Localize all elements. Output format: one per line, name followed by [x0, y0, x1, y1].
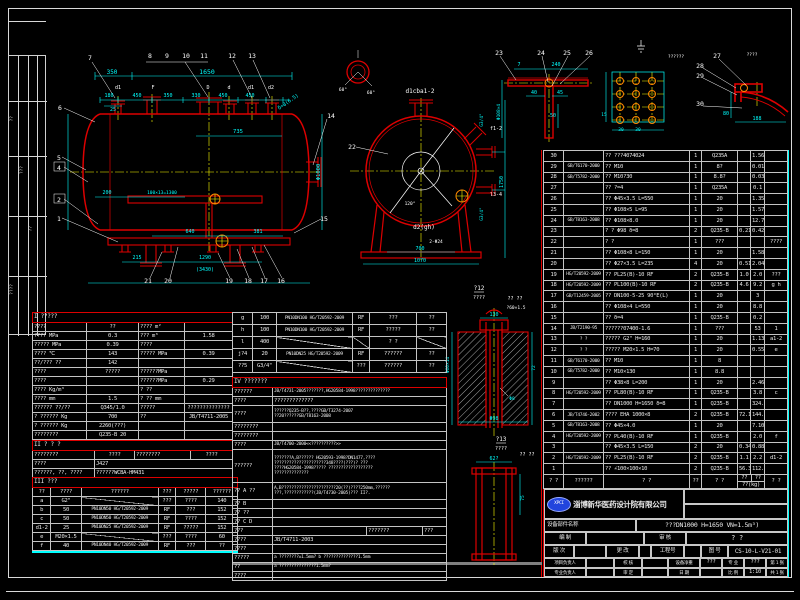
- svg-text:100×13=1300: 100×13=1300: [147, 190, 177, 196]
- tb-value: [639, 545, 651, 558]
- noz-accent: [32, 551, 238, 553]
- req-row: ?? ??: [233, 509, 447, 518]
- company-logo: XPCI: [547, 497, 571, 512]
- nozzle-row: l400 ? ?: [233, 337, 447, 349]
- svg-text:215: 215: [132, 255, 141, 261]
- end-view-internals: [390, 128, 454, 213]
- tb-value: ???: [700, 558, 722, 568]
- req-row: ?????a ????????±1.5mm? b ??????????????1…: [233, 554, 447, 563]
- bom-row: 12 ? ? ????? M20×1.5 H=70 1 20 0.55 e: [544, 345, 788, 356]
- tb-value: [684, 545, 701, 558]
- svg-text:15: 15: [320, 215, 328, 223]
- svg-text:350: 350: [163, 93, 172, 99]
- noz-header: ???????????? ??????????????: [33, 488, 238, 497]
- svg-text:7: 7: [88, 54, 92, 62]
- nozzle-table: III ??? ???????????? ?????????????? aG2"…: [32, 477, 238, 551]
- bom-row: 22 ? ? 1 ??? ????: [544, 237, 788, 248]
- req-row: ???? ??????Q235-B??,????GB/T3274-2007??2…: [233, 406, 447, 423]
- bom-row: 18 HG/T20592-2009 ?? PL100(B)-10 RF 2 Q2…: [544, 280, 788, 291]
- spec-row: ? ?????? Kg2260(???): [33, 422, 233, 431]
- svg-text:640: 640: [185, 229, 194, 235]
- end-view-labels: d1cba1-2 22 d2(gh) 60° 60° 120° 700 2-Φ2…: [339, 87, 505, 264]
- nozzle-row: ??5G3/4" ??? ????????: [233, 361, 447, 373]
- bom: 30 ?? ???4074024 1 Q235A 1.56 29 GB/T617…: [543, 150, 788, 489]
- svg-text:?13: ?13: [496, 436, 507, 443]
- nozzle-row: d1-225PN10DN25 HG/T20592-2009 RF?????152: [33, 524, 238, 533]
- end-flange-bolt: [456, 190, 468, 202]
- tb-label: 项目负责人: [544, 558, 586, 568]
- spec-row: ????????Q235-B 20: [33, 431, 233, 440]
- angle-detail[interactable]: [345, 50, 372, 86]
- tb-value: [586, 558, 614, 568]
- bom-row: 6 JB/T4746-2002 ???? EHA 1000×8 2 Q235-B…: [544, 410, 788, 421]
- svg-text:15: 15: [601, 112, 607, 118]
- svg-text:62?: 62?: [489, 456, 498, 462]
- tb-label: 日 期: [668, 568, 700, 577]
- svg-text:l3-4: l3-4: [490, 192, 502, 198]
- tb-value: [586, 532, 644, 545]
- bom-row: 24 GB/T8163-2008 ?? Φ108×8.0 1 20 12.7: [544, 215, 788, 226]
- svg-text:1750: 1750: [499, 176, 505, 188]
- nozzle-row: c50PN10DN50 HG/T20592-2009 RF????152: [33, 515, 238, 524]
- svg-text:240: 240: [551, 62, 560, 68]
- svg-text:G3/4": G3/4": [479, 207, 485, 221]
- company-cell: XPCI 淄博新华医药设计院有限公司: [544, 489, 684, 519]
- tb-label: 设备净重: [668, 558, 700, 568]
- bom-row: 20 ?? Φ27×3.5 L=235 4 20 0.51 2.04: [544, 258, 788, 269]
- bom-row: 2 HG/T20592-2009 ?? PL25(B)-10 RF 2 Q235…: [544, 453, 788, 464]
- tb-label: 校 核: [614, 558, 642, 568]
- svg-text:22: 22: [348, 143, 356, 151]
- bom-row: 17 GB/T12459-2005 ?? DN100-5-25 90°E(L) …: [544, 291, 788, 302]
- sec2-row: ????J427: [33, 460, 233, 469]
- svg-text:450: 450: [132, 93, 141, 99]
- bom-row: 10 GB/T5782-2000 ?? M10×130 1 8.8: [544, 366, 788, 377]
- svg-text:4: 4: [57, 164, 61, 172]
- svg-text:f1-2: f1-2: [490, 126, 502, 132]
- nozzle-row: f40PN10DN40 HG/T20592-2009 RF?????: [33, 542, 238, 551]
- front-flange-bolts: [210, 194, 228, 247]
- nozzle-row: eM20×1.5 ???????60: [33, 533, 238, 542]
- bom-row: 13 ? ? ????? G2" H=160 1 20 1.13 a1-2: [544, 334, 788, 345]
- tb-label: 比 例: [722, 568, 744, 577]
- svg-text:Φ8: Φ8: [509, 396, 515, 402]
- req-row: ?? C D: [233, 518, 447, 527]
- bom-row: 29 GB/T6170-2000 ?? M10 1 8? 0.01: [544, 161, 788, 172]
- req-row: ??a ???????????????1.5mm?: [233, 563, 447, 572]
- svg-text:45: 45: [557, 90, 563, 96]
- bom-row: 3 ?? Φ45×3.5 L=150 2 20 0.34 0.88: [544, 442, 788, 453]
- svg-text:16: 16: [277, 277, 285, 285]
- tb-label: 图 号: [701, 545, 728, 558]
- svg-text:60°: 60°: [367, 90, 375, 96]
- bom-row: 7 ?? DN1000 H=1650 δ=8 1 Q235-B 324.3: [544, 399, 788, 410]
- spec-row: ????????? ??????MPa: [33, 368, 233, 377]
- svg-text:(3430): (3430): [196, 267, 214, 273]
- tb-value: [700, 568, 722, 577]
- svg-text:30: 30: [635, 127, 641, 133]
- svg-text:7: 7: [517, 62, 520, 68]
- svg-text:50: 50: [550, 113, 556, 119]
- svg-text:d1: d1: [248, 85, 254, 91]
- spec-row: ??/??? ??142: [33, 359, 233, 368]
- front-view[interactable]: [83, 97, 321, 266]
- svg-text:20: 20: [164, 277, 172, 285]
- svg-text:d1cba1-2: d1cba1-2: [406, 88, 435, 95]
- bom-row: 26 ?? Φ45×3.5 L=550 1 20 1.35: [544, 194, 788, 205]
- svg-text:????: ????: [473, 295, 485, 301]
- svg-text:24: 24: [537, 49, 545, 57]
- svg-text:2-Φ24: 2-Φ24: [429, 239, 443, 245]
- spec-row: ???? mm1.5 ? ?? mm: [33, 395, 233, 404]
- svg-text:180: 180: [104, 93, 113, 99]
- svg-text:23: 23: [495, 49, 503, 57]
- svg-text:450: 450: [245, 93, 254, 99]
- svg-text:9: 9: [165, 52, 169, 60]
- bom-row: 23 ? ? Φ98 δ=8 2 Q235-B 0.21 0.42: [544, 226, 788, 237]
- sheet-number: 第 1 张: [766, 558, 788, 568]
- spec-row: ???? Kg/m³ ? ??: [33, 386, 233, 395]
- lug-bolt: [741, 85, 748, 92]
- sheet-total: 共 1 张: [766, 568, 788, 577]
- svg-text:12: 12: [228, 52, 236, 60]
- bom-row: 30 ?? ???4074024 1 Q235A 1.56: [544, 151, 788, 162]
- svg-text:11: 11: [200, 52, 208, 60]
- spec-row: ? ?????? Kg700 ??JB/T4711-2005: [33, 413, 233, 422]
- svg-text:28: 28: [696, 62, 704, 70]
- spec-table-wrap: I ????? ?????? ???? m² ???? MPa0.3 ??? m…: [32, 312, 233, 440]
- bom-row: 8 HG/T20592-2009 ?? PL80(B)-10 RF 1 Q235…: [544, 388, 788, 399]
- tb-value: ???: [744, 558, 766, 568]
- nozzle2-wrap: g100 PN10DN100 HG/T20592-2009RF ????? h1…: [232, 312, 447, 373]
- req-row: ????: [233, 545, 447, 554]
- title-block: XPCI 淄博新华医药设计院有限公司 设备部件名称 ???DN1000 H=16…: [543, 489, 788, 577]
- tb-label: 版 次: [544, 545, 574, 558]
- svg-text:8: 8: [148, 52, 152, 60]
- tb-stage: ? ?: [686, 532, 788, 545]
- tb-blank-1: [684, 489, 788, 504]
- svg-text:????: ????: [495, 446, 507, 452]
- svg-text:d2: d2: [268, 85, 274, 91]
- tb-value: [586, 568, 614, 577]
- company-name: 淄博新华医药设计院有限公司: [573, 499, 667, 510]
- sec2-row: ???????????? ????????????: [33, 451, 233, 460]
- bom-row: 14 JB/T2190-95 ??????07400-1.6 1 ??? 53 …: [544, 323, 788, 334]
- svg-text:F: F: [151, 85, 154, 91]
- spec-row: ????? MPa0.39 ????: [33, 341, 233, 350]
- nozzle-row: h100 PN10DN100 HG/T20592-2009RF ???????: [233, 325, 447, 337]
- svg-text:10: 10: [182, 52, 190, 60]
- req-row: ?????????????: [233, 527, 447, 536]
- req-table: IV ??????? ??????JB/T4731-2005???????,HG…: [232, 377, 447, 581]
- svg-text:450: 450: [218, 93, 227, 99]
- drawing-number: CS-10-L-V21-01: [728, 545, 788, 558]
- svg-text:381: 381: [253, 229, 262, 235]
- svg-text:5: 5: [57, 154, 61, 162]
- svg-text:30: 30: [618, 127, 624, 133]
- bom-row: 27 ?? ?=4 1 Q235A 0.1: [544, 183, 788, 194]
- svg-text:1650: 1650: [199, 68, 215, 76]
- tb-label: 审 核: [644, 532, 686, 545]
- tb-label: 专业负责人: [544, 568, 586, 577]
- tb-value: [642, 558, 668, 568]
- req-row: ????: [233, 572, 447, 581]
- noz-title: III ???: [33, 478, 238, 488]
- cad-viewport[interactable]: ?? ??? ?? ????: [0, 0, 800, 600]
- name-label: 设备部件名称: [544, 519, 636, 532]
- req-row: ?????????????????: [233, 397, 447, 406]
- svg-text:?12: ?12: [474, 285, 485, 292]
- nozzle-table-2: g100 PN10DN100 HG/T20592-2009RF ????? h1…: [232, 312, 447, 373]
- req-row: ????JB/T4711-2003: [233, 536, 447, 545]
- svg-text:13: 13: [248, 52, 256, 60]
- bom-row: 15 ?? δ=4 1 Q235-B 0.2: [544, 312, 788, 323]
- svg-text:29: 29: [696, 72, 704, 80]
- svg-text:21: 21: [144, 277, 152, 285]
- req-title: IV ???????: [233, 378, 447, 388]
- svg-text:Φ98: Φ98: [489, 416, 498, 422]
- svg-text:30: 30: [696, 100, 704, 108]
- bom-row: 4 HG/T20592-2009 ?? PL40(B)-10 RF 1 Q235…: [544, 431, 788, 442]
- nozzle-row: b50PN10DN50 HG/T20592-2009 RF???152: [33, 506, 238, 515]
- svg-text:350: 350: [107, 69, 118, 76]
- req-row: ?? A ?? A,B??????????????????????20(??)?…: [233, 483, 447, 500]
- svg-text:1: 1: [57, 215, 61, 223]
- svg-text:75: 75: [520, 495, 526, 501]
- req-row: ????????: [233, 423, 447, 432]
- bom-row: 28 GB/T5782-2000 ?? M10?30 1 8.8? 0.03: [544, 172, 788, 183]
- req-row: ?? B: [233, 500, 447, 509]
- svg-text:130: 130: [489, 312, 498, 318]
- tb-label: 更 改: [606, 545, 639, 558]
- svg-text:δ=8(6.5): δ=8(6.5): [277, 93, 300, 112]
- svg-text:?60×1.5: ?60×1.5: [507, 305, 526, 311]
- svg-text:120°: 120°: [405, 201, 416, 207]
- svg-text:25: 25: [110, 107, 116, 113]
- perforated-plate[interactable]: [612, 40, 664, 124]
- svg-text:?? ??: ?? ??: [519, 452, 534, 458]
- bom-row: 11 GB/T6170-2000 ?? M10 1 8: [544, 356, 788, 367]
- svg-text:26: 26: [585, 49, 593, 57]
- nozzle-row: j?420 PN10DN25 HG/T20592-2009RF ????????: [233, 349, 447, 361]
- sec2-title: II ? ? ?: [33, 441, 233, 451]
- svg-text:1290: 1290: [199, 255, 211, 261]
- svg-text:330: 330: [191, 93, 200, 99]
- svg-text:700: 700: [415, 246, 424, 252]
- tb-label: 专 业: [722, 558, 744, 568]
- svg-text:d2(gh): d2(gh): [413, 224, 435, 231]
- req-wrap: IV ??????? ??????JB/T4731-2005???????,HG…: [232, 377, 447, 581]
- bom-row: 9 ?? Φ38×8 L=200 1 20 2.46: [544, 377, 788, 388]
- req-row: ????JB/T4700-2000<<??????????>>: [233, 441, 447, 450]
- spec-row: ???? MPa0.3 ??? m³1.58: [33, 332, 233, 341]
- bom-row: 16 ?? Φ108×4 L=550 1 20 8.8: [544, 302, 788, 313]
- svg-text:60°: 60°: [339, 87, 347, 93]
- svg-text:80: 80: [723, 111, 729, 117]
- svg-text:72: 72: [531, 365, 537, 371]
- scale-value: 1:10: [744, 568, 766, 577]
- svg-text:1070: 1070: [414, 258, 426, 264]
- svg-text:14: 14: [327, 112, 335, 120]
- svg-text:d: d: [227, 85, 230, 91]
- svg-text:D: D: [206, 85, 209, 91]
- svg-text:??????: ??????: [668, 54, 685, 60]
- tb-value: [642, 568, 668, 577]
- svg-text:????: ????: [747, 52, 758, 58]
- svg-text:6: 6: [58, 104, 62, 112]
- svg-text:40: 40: [531, 90, 537, 96]
- ground-symbol: [637, 40, 645, 52]
- spec-row: ?????? ??/??Q345/1.0 ???????????????????: [33, 404, 233, 413]
- svg-text:27: 27: [713, 52, 721, 60]
- bom-row: 5 GB/T8163-2008 ?? Φ45×4.0 1 20 7.10: [544, 420, 788, 431]
- tb-blank-2: [684, 504, 788, 519]
- bom-table: 30 ?? ???4074024 1 Q235A 1.56 29 GB/T617…: [543, 150, 788, 489]
- svg-text:735: 735: [233, 129, 243, 135]
- svg-text:25: 25: [563, 49, 571, 57]
- tb-value: [574, 545, 606, 558]
- nozzle-row: g100 PN10DN100 HG/T20592-2009RF ?????: [233, 313, 447, 325]
- svg-text:Φ108×4: Φ108×4: [496, 104, 502, 121]
- sec2-wrap: II ? ? ? ???????????? ???????????? ????J…: [32, 440, 233, 478]
- nozzle-row: aG2" ???????140: [33, 497, 238, 506]
- req-row: ??????JB/T4731-2005???????,HG20584-1998?…: [233, 388, 447, 397]
- bom-row: 21 ?? Φ108×8 L=150 1 20 1.58: [544, 248, 788, 259]
- nozzle-table-wrap: III ??? ???????????? ?????????????? aG2"…: [32, 477, 238, 551]
- front-balloons: 7 8 9 10 11 12 13 14 6 5 4 2 1 21 20 19 …: [57, 52, 335, 285]
- svg-text:200: 200: [102, 190, 111, 196]
- tb-label: 工程号: [651, 545, 684, 558]
- spec-row: ?????? ???? m²: [33, 323, 233, 332]
- bom-header: ? ? ?????? ? ? ?? ? ? ???? ??(kg) ? ?: [544, 474, 788, 488]
- bom-row: 1 ?? ∠100×100×10 2 Q235-B 56.3 112.6: [544, 464, 788, 475]
- head-lug-detail[interactable]: [735, 84, 788, 116]
- spec-title: I ?????: [33, 313, 233, 323]
- spec-row: ???? ℃143 ????? MPa0.39: [33, 350, 233, 359]
- svg-text:2: 2: [57, 196, 61, 204]
- svg-text:17: 17: [260, 277, 268, 285]
- svg-text:d1: d1: [115, 85, 121, 91]
- drawing-title: ???DN1000 H=1650 VN=1.5m³): [636, 519, 788, 532]
- front-view-labels: 350 1650 d1 F D d d1 d2 180 450 350 330 …: [102, 68, 322, 273]
- req-row: ?????? ???????A,B?????? HG20593-1998?DN1…: [233, 450, 447, 483]
- bom-row: 19 HG/T20592-2009 ?? PL25(B)-10 RF 2 Q23…: [544, 269, 788, 280]
- svg-text:Φ1000: Φ1000: [316, 164, 322, 181]
- tb-label: 编 制: [544, 532, 586, 545]
- weld-table: II ? ? ? ???????????? ???????????? ????J…: [32, 440, 233, 478]
- svg-text:18: 18: [244, 277, 252, 285]
- bom-row: 25 ?? Φ108×5 L=95 1 20 1.57: [544, 204, 788, 215]
- svg-text:19: 19: [225, 277, 233, 285]
- req-row: ????????: [233, 432, 447, 441]
- svg-text:188: 188: [752, 116, 761, 122]
- spec-row: ???? ??????MPa0.29: [33, 377, 233, 386]
- tb-label: 审 定: [614, 568, 642, 577]
- spec-table: I ????? ?????? ???? m² ???? MPa0.3 ??? m…: [32, 312, 233, 440]
- svg-text:?? ??: ?? ??: [507, 296, 522, 302]
- svg-text:G3/4": G3/4": [479, 113, 485, 127]
